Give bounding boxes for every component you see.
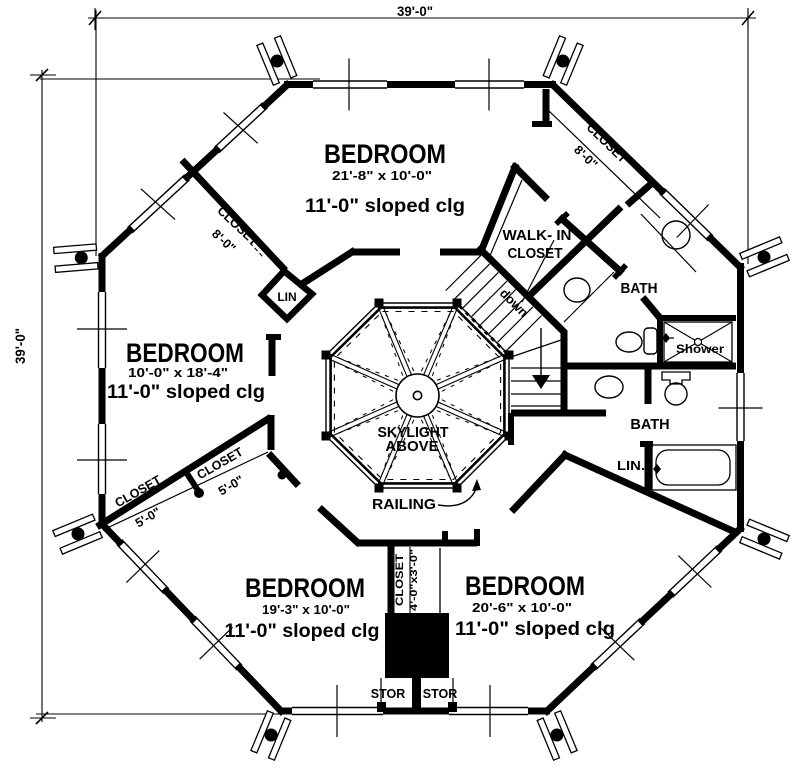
svg-text:LIN.: LIN. (617, 458, 645, 473)
svg-text:STOR: STOR (371, 687, 406, 701)
svg-text:11'-0" sloped clg: 11'-0" sloped clg (225, 621, 380, 642)
svg-text:39'-0": 39'-0" (13, 328, 28, 364)
svg-text:BEDROOM: BEDROOM (245, 573, 365, 603)
svg-text:BATH: BATH (621, 281, 658, 297)
svg-text:BATH: BATH (630, 417, 669, 433)
svg-text:BEDROOM: BEDROOM (324, 139, 446, 169)
svg-text:ABOVE: ABOVE (385, 438, 438, 455)
svg-text:Shower: Shower (676, 344, 725, 356)
svg-text:10'-0" x 18'-4": 10'-0" x 18'-4" (128, 365, 228, 380)
svg-text:CLOSET: CLOSET (394, 554, 406, 606)
svg-text:STOR: STOR (423, 687, 458, 701)
svg-text:RAILING: RAILING (372, 496, 436, 513)
svg-text:WALK- IN: WALK- IN (503, 228, 572, 244)
svg-text:4'-0"x3'-0": 4'-0"x3'-0" (409, 549, 420, 611)
svg-text:CLOSET: CLOSET (508, 246, 563, 262)
svg-text:BEDROOM: BEDROOM (126, 338, 244, 368)
svg-text:11'-0" sloped clg: 11'-0" sloped clg (107, 382, 265, 403)
svg-text:39'-0": 39'-0" (397, 4, 433, 19)
svg-text:21'-8" x 10'-0": 21'-8" x 10'-0" (332, 168, 432, 183)
svg-text:19'-3" x 10'-0": 19'-3" x 10'-0" (262, 602, 350, 617)
svg-text:BEDROOM: BEDROOM (465, 571, 585, 601)
svg-text:11'-0" sloped clg: 11'-0" sloped clg (305, 196, 465, 217)
svg-text:11'-0" sloped clg: 11'-0" sloped clg (455, 619, 615, 640)
svg-text:20'-6" x 10'-0": 20'-6" x 10'-0" (472, 600, 572, 615)
svg-text:LIN: LIN (277, 290, 296, 304)
